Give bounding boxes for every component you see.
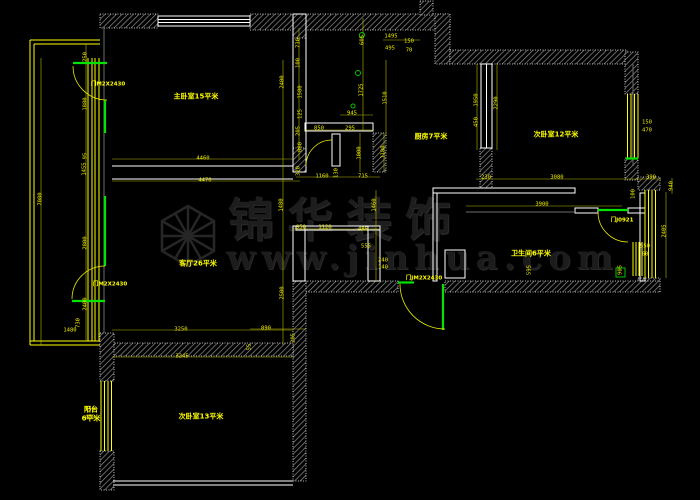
dimension-label: 1180 (381, 145, 387, 158)
dimension-label: 100 (631, 189, 637, 199)
dimension-label: 1580 (298, 85, 304, 98)
dimension-label: 2800 (83, 236, 89, 249)
door-label: 门M2X2430 (91, 82, 125, 88)
dimension-label: 130 (334, 168, 340, 178)
dimension-label: 940 (669, 181, 675, 191)
dimension-label: 140 (378, 265, 388, 271)
room-label: 次卧室12平米 (534, 132, 579, 139)
dimension-label: 1460 (372, 198, 378, 211)
dimension-label: 485 (358, 227, 368, 233)
dimension-label: 2290 (494, 96, 500, 109)
dimension-label: 3250 (174, 327, 187, 333)
dimension-label: 550 (640, 244, 650, 250)
room-label: 6平米 (82, 416, 101, 423)
dimension-label: 850 (314, 126, 324, 132)
dimension-label: 1120 (318, 225, 331, 231)
cad-floorplan-screenshot: 锦华装饰 www.jinhua.com (0, 0, 700, 500)
dimension-label: 205 (296, 126, 302, 136)
dimension-label: 2400 (83, 297, 89, 310)
dimension-label: 1480 (279, 198, 285, 211)
dimension-label: 555 (361, 244, 371, 250)
dimension-label: 7080 (38, 192, 44, 205)
room-label: 次卧室13平米 (179, 414, 224, 421)
dimension-label: 60 (642, 252, 649, 258)
dimension-label: 150 (404, 39, 414, 45)
dimension-label: 95 (83, 153, 89, 160)
dimension-label: 450 (474, 117, 480, 127)
door-label: 门JM2X2430 (406, 276, 442, 282)
room-label: 厨房7平米 (415, 134, 448, 141)
dimension-label: 2500 (280, 286, 286, 299)
dimension-label: 890 (261, 326, 271, 332)
dimension-label: 595 (527, 265, 533, 275)
dimension-label: 125 (298, 109, 304, 119)
dimension-label: 230 (481, 175, 491, 181)
label-layer: 4460447032503245890205557080250188095145… (0, 0, 700, 500)
dimension-label: 2405 (662, 224, 668, 237)
dimension-label: 100 (296, 58, 302, 68)
dimension-label: 70 (406, 48, 413, 54)
dimension-label: 1455 (82, 162, 88, 175)
dimension-label: 950 (296, 225, 306, 231)
dimension-label: 1480 (63, 328, 76, 334)
dimension-label: 4460 (196, 156, 209, 162)
dimension-label: 605 (360, 35, 366, 45)
dimension-label: 205 (291, 333, 297, 343)
dimension-label: 1495 (384, 34, 397, 40)
dimension-label: 1880 (83, 97, 89, 110)
dimension-label: 2400 (280, 75, 286, 88)
dimension-label: 3080 (550, 175, 563, 181)
dimension-label: 295 (345, 126, 355, 132)
dimension-label: 240 (378, 258, 388, 264)
room-label: 卫生间6平米 (511, 251, 551, 258)
dimension-label: 495 (385, 46, 395, 52)
dimension-label: 1950 (474, 93, 480, 106)
dimension-label: 390 (646, 175, 656, 181)
room-label: 客厅26平米 (179, 261, 217, 268)
dimension-label: 880 (298, 142, 304, 152)
dimension-label: 470 (642, 128, 652, 134)
room-label: 主卧室15平米 (174, 94, 219, 101)
dimension-label: 3245 (175, 354, 188, 360)
dimension-label: 1510 (383, 91, 389, 104)
dimension-label: 1000 (357, 146, 363, 159)
dimension-label: 250 (83, 52, 89, 62)
dimension-label: 4470 (198, 178, 211, 184)
dimension-label: 1160 (315, 174, 328, 180)
dimension-label: 150 (642, 120, 652, 126)
dimension-label: 1725 (359, 83, 365, 96)
dimension-label: 730 (76, 318, 82, 328)
door-label: 门J0921 (611, 218, 634, 224)
dimension-label: 715 (358, 174, 368, 180)
dimension-label: 55 (247, 344, 253, 351)
room-label: 阳台 (84, 407, 98, 414)
dimension-label: 905 (618, 265, 624, 275)
dimension-label: 730 (296, 38, 302, 48)
door-label: 门M2X2430 (93, 282, 127, 288)
dimension-label: 945 (347, 111, 357, 117)
dimension-label: 3900 (535, 202, 548, 208)
dimension-label: 320 (296, 166, 302, 176)
